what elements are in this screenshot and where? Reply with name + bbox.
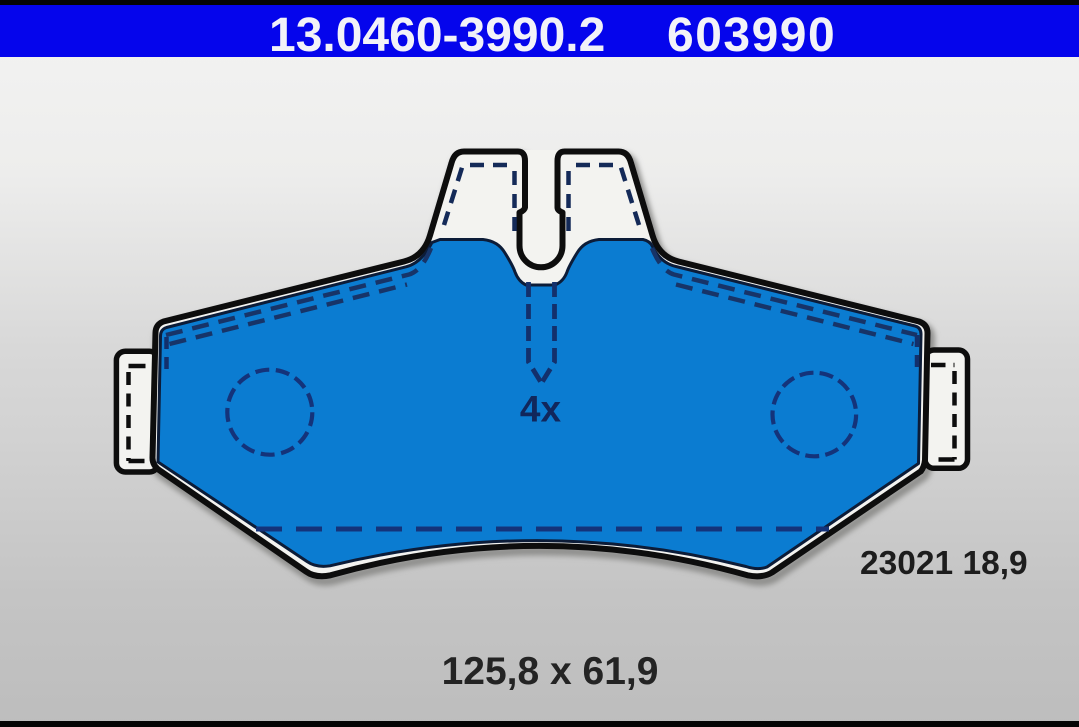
svg-text:4x: 4x [520,389,562,430]
svg-text:13.0460-3990.2: 13.0460-3990.2 [269,9,605,62]
svg-text:125,8 x 61,9: 125,8 x 61,9 [442,650,659,693]
svg-text:603990: 603990 [667,9,836,62]
svg-text:23021 18,9: 23021 18,9 [860,545,1028,582]
